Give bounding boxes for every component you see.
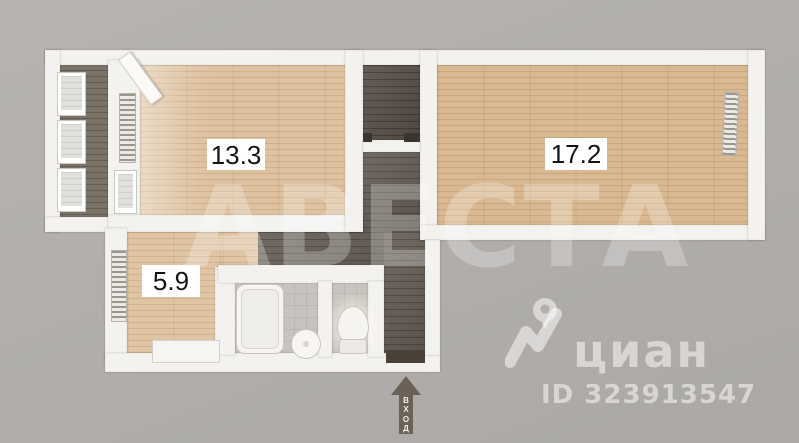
kitchen-doorway-floor [222,232,258,267]
toilet-tank [339,339,367,354]
closet-door-post [404,133,420,142]
window-pane [118,174,133,208]
wall-right [748,50,765,240]
room-area-label-bedroom: 17.2 [545,138,607,170]
wall-bedroom-left [420,50,437,240]
balcony-window-icon [57,72,86,116]
window-pane [61,172,82,206]
wall-living-room-right [345,50,363,232]
radiator-icon [111,250,127,322]
radiator-icon [119,93,136,163]
bathtub-icon [236,284,284,354]
cian-logo-row: циан [505,296,765,376]
cian-watermark: циан ID 323913547 [505,296,765,410]
listing-id: ID 323913547 [541,380,765,410]
entrance-letter: Х [403,405,408,415]
window-pane [61,124,82,158]
balcony-window-icon [57,168,86,212]
entrance-arrow: В Х О Д [391,376,421,436]
entry-corridor-floor [384,232,425,358]
balcony-door-window-icon [114,170,137,214]
closet-floor [363,65,420,143]
cian-logo-text: циан [573,328,710,374]
room-area-label-living: 13.3 [207,139,265,170]
kitchen-counter-icon [152,340,220,363]
map-pin-icon [505,296,565,376]
room-area-label-kitchen: 5.9 [142,265,200,297]
floor-plan-image: 13.3 17.2 5.9 В Х О Д АВЕСТА циан ID 323… [0,0,799,443]
wall-corridor-right [425,240,440,355]
wall-bedroom-bottom [420,225,765,240]
wall-top [45,50,763,65]
balcony-window-icon [57,120,86,164]
entrance-letter: О [403,415,409,425]
sink-icon [291,329,321,359]
wall-wc-right [368,281,384,357]
entrance-letter: Д [403,424,409,434]
bathtub-basin [241,289,279,349]
entrance-door-threshold [386,350,425,363]
entrance-letter: В [403,396,409,406]
entrance-arrow-shaft: В Х О Д [399,395,413,434]
arrow-up-icon [391,376,421,395]
window-pane [61,76,82,110]
corridor-floor-upper [363,150,420,232]
wall-living-room-bottom [108,215,363,232]
wall-bathroom-top [218,265,384,283]
closet-door-post [363,133,372,142]
